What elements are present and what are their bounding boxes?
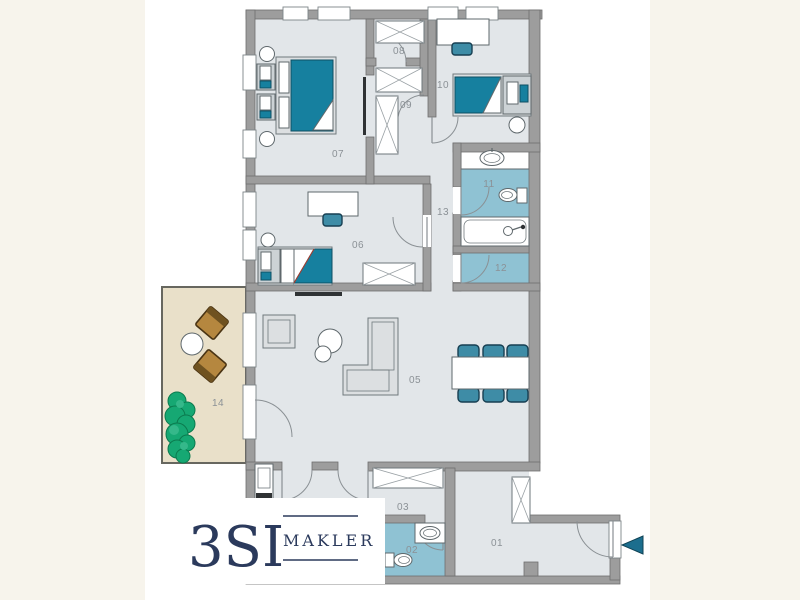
room-label-10: 10: [437, 80, 449, 91]
balcony-table-icon: [181, 333, 203, 355]
toilet-icon: [499, 188, 527, 203]
room-label-03: 03: [397, 502, 409, 513]
dining-chair-icon: [483, 388, 504, 402]
desk-chair-icon: [452, 43, 472, 55]
desk-icon: [437, 19, 489, 45]
tv-icon: [295, 292, 342, 296]
lamp-icon: [509, 117, 525, 133]
balcony: 14: [162, 287, 246, 463]
desk-icon: [308, 192, 358, 216]
dining-chair-icon: [458, 388, 479, 402]
dining-chair-icon: [507, 388, 528, 402]
dining-set: [452, 345, 529, 402]
lamp-icon: [260, 132, 275, 147]
sliding-door: [363, 77, 366, 135]
sink-icon: [420, 527, 440, 540]
room-label-09: 09: [400, 100, 412, 111]
room-label-01: 01: [491, 538, 503, 549]
lamp-icon: [260, 47, 275, 62]
room-label-12: 12: [495, 263, 507, 274]
logo: 3SI MAKLER: [185, 498, 385, 584]
desk-chair-icon: [323, 214, 342, 226]
room-label-07: 07: [332, 149, 344, 160]
room-label-13: 13: [437, 207, 449, 218]
logo-subtitle-text: MAKLER: [283, 531, 375, 550]
room-label-06: 06: [352, 240, 364, 251]
room-label-05: 05: [409, 375, 421, 386]
room-label-08: 08: [393, 46, 405, 57]
room-label-11: 11: [483, 179, 494, 190]
floor-plan-page: 14: [0, 0, 800, 600]
room-label-14: 14: [212, 398, 224, 409]
entry-corridor-floor: [529, 523, 611, 576]
room-label-02: 02: [406, 545, 418, 556]
side-table-icon: [315, 346, 331, 362]
kitchen-counter: [255, 464, 273, 502]
bathtub-icon: [461, 217, 529, 246]
floor-plan: 14: [0, 0, 800, 600]
lamp-icon: [261, 233, 275, 247]
armchair-icon: [263, 315, 295, 348]
logo-brand-text: 3SI: [188, 515, 284, 580]
dining-table-icon: [452, 357, 529, 389]
